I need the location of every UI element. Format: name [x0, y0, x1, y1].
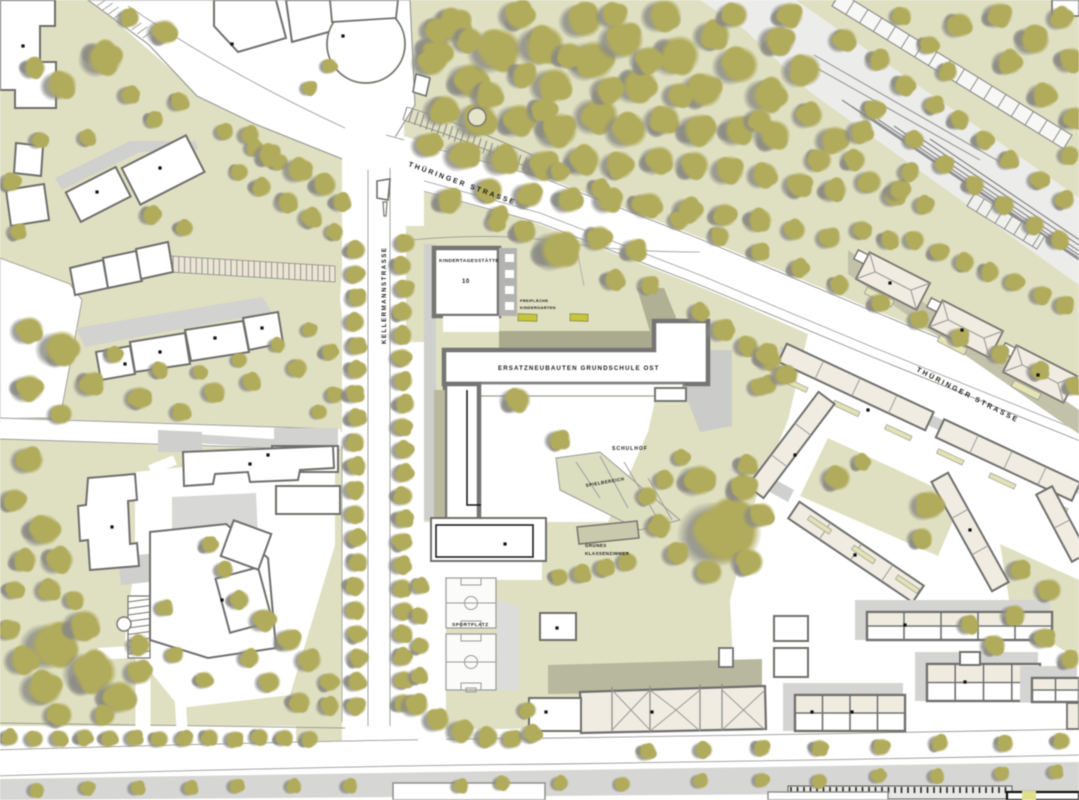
svg-text:KLASSENZIMMER: KLASSENZIMMER: [585, 551, 630, 556]
svg-text:KINDERTAGESSTÄTTE: KINDERTAGESSTÄTTE: [439, 257, 499, 264]
svg-text:FREIFLÄCHE: FREIFLÄCHE: [520, 298, 548, 303]
svg-text:GRÜNES: GRÜNES: [585, 542, 607, 548]
svg-text:SCHULHOF: SCHULHOF: [612, 446, 648, 452]
svg-text:SPORTPLATZ: SPORTPLATZ: [452, 622, 489, 628]
svg-text:KELLERMANNSTRASSE: KELLERMANNSTRASSE: [382, 246, 388, 344]
svg-text:KINDERGARTEN: KINDERGARTEN: [520, 305, 556, 310]
svg-text:10: 10: [462, 279, 470, 285]
svg-text:ERSATZNEUBAUTEN GRUNDSCHULE: ERSATZNEUBAUTEN GRUNDSCHULE OST: [498, 365, 660, 372]
